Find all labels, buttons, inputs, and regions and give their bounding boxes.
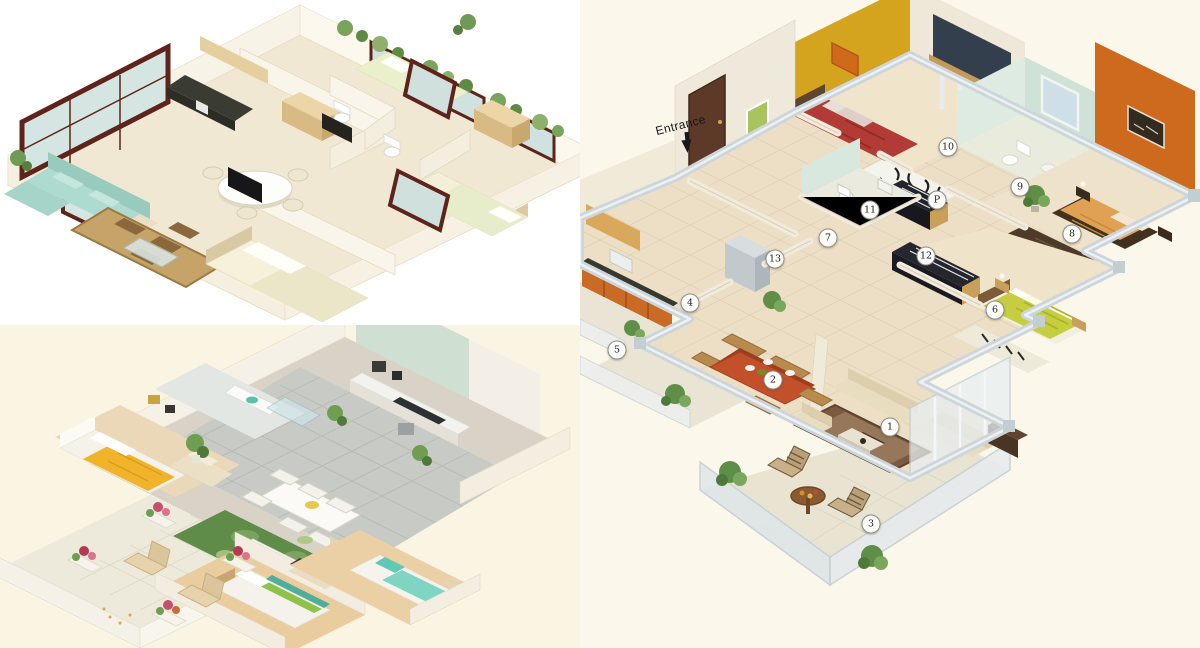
plan-top-left — [0, 0, 580, 325]
plan-top-left-illustration — [0, 0, 580, 325]
entrance-label-group: Entrance — [636, 116, 726, 134]
plan-right: Entrance 12345678910111213P — [580, 0, 1200, 648]
plan-right-illustration — [580, 0, 1200, 648]
floor-plan-collage: Entrance 12345678910111213P — [0, 0, 1200, 648]
plan-bottom-left — [0, 325, 580, 648]
plan-bottom-left-illustration — [0, 325, 580, 648]
entrance-arrow-icon — [681, 140, 692, 154]
